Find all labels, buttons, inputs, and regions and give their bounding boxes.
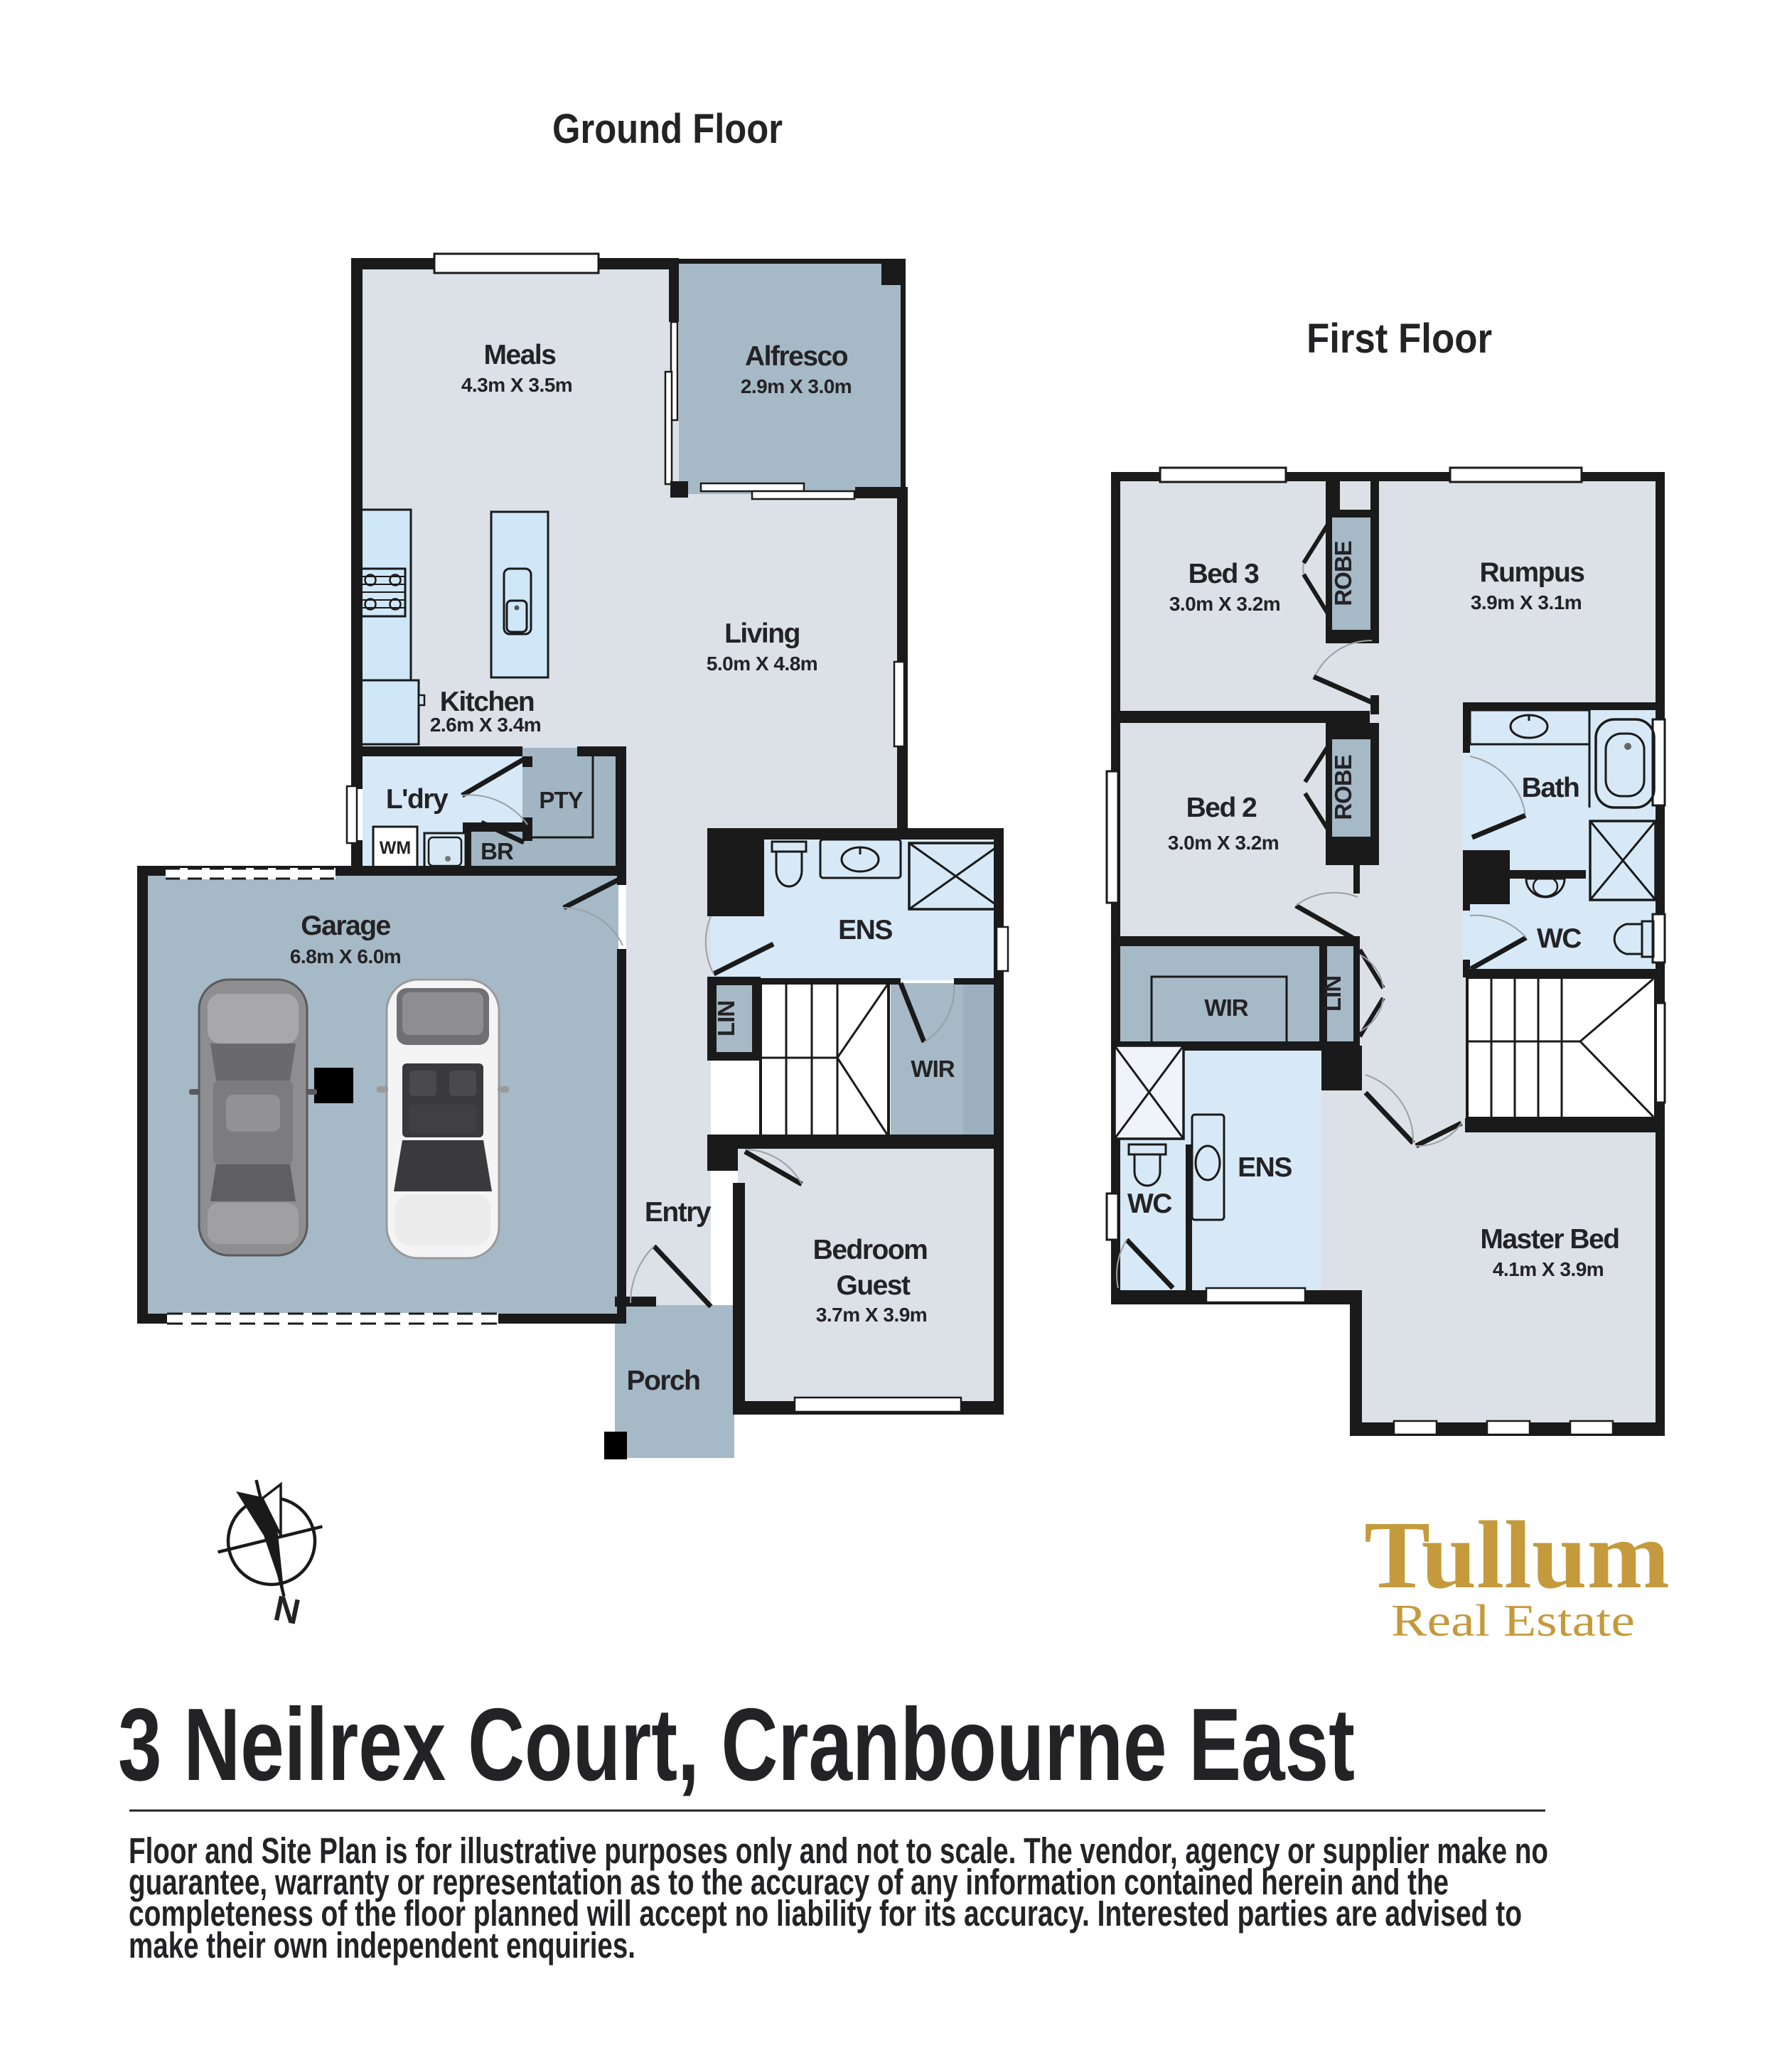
svg-text:3.7m X 3.9m: 3.7m X 3.9m <box>816 1304 927 1326</box>
svg-text:Master Bed: Master Bed <box>1480 1224 1619 1255</box>
svg-text:3.9m X 3.1m: 3.9m X 3.1m <box>1471 591 1582 613</box>
svg-text:WC: WC <box>1127 1189 1172 1219</box>
svg-text:Bedroom: Bedroom <box>813 1235 928 1265</box>
svg-text:Kitchen: Kitchen <box>440 687 535 717</box>
svg-text:WIR: WIR <box>1204 994 1248 1021</box>
svg-text:Bed 2: Bed 2 <box>1186 793 1257 823</box>
svg-text:Meals: Meals <box>484 340 557 370</box>
svg-text:WC: WC <box>1537 923 1582 954</box>
svg-text:make their own independent enq: make their own independent enquiries. <box>129 1925 635 1966</box>
svg-text:Garage: Garage <box>301 911 390 941</box>
svg-text:WM: WM <box>380 838 411 858</box>
svg-text:Bath: Bath <box>1522 773 1579 803</box>
svg-text:Bed 3: Bed 3 <box>1189 559 1260 589</box>
svg-text:4.1m X 3.9m: 4.1m X 3.9m <box>1493 1258 1604 1280</box>
svg-text:BR: BR <box>481 838 514 864</box>
svg-text:L'dry: L'dry <box>386 784 449 815</box>
svg-text:2.6m X 3.4m: 2.6m X 3.4m <box>430 714 541 736</box>
svg-text:Guest: Guest <box>836 1270 911 1301</box>
svg-text:ROBE: ROBE <box>1330 755 1356 820</box>
svg-text:4.3m X 3.5m: 4.3m X 3.5m <box>461 374 572 396</box>
svg-text:Porch: Porch <box>626 1366 699 1396</box>
svg-text:Alfresco: Alfresco <box>745 341 848 372</box>
svg-text:Entry: Entry <box>645 1197 712 1228</box>
svg-text:ROBE: ROBE <box>1330 541 1356 606</box>
svg-text:WIR: WIR <box>911 1056 955 1082</box>
svg-text:Rumpus: Rumpus <box>1480 557 1585 588</box>
svg-text:LIN: LIN <box>1319 976 1346 1012</box>
svg-text:PTY: PTY <box>539 787 583 813</box>
svg-text:3.0m X 3.2m: 3.0m X 3.2m <box>1168 832 1279 854</box>
svg-text:ENS: ENS <box>838 915 892 945</box>
svg-text:3 Neilrex Court, Cranbourne Ea: 3 Neilrex Court, Cranbourne East <box>118 1687 1355 1802</box>
svg-text:Living: Living <box>724 618 800 649</box>
svg-text:3.0m X 3.2m: 3.0m X 3.2m <box>1169 593 1280 615</box>
svg-text:LIN: LIN <box>713 1001 739 1036</box>
svg-text:2.9m X 3.0m: 2.9m X 3.0m <box>741 375 852 397</box>
svg-text:5.0m X 4.8m: 5.0m X 4.8m <box>707 653 817 675</box>
svg-text:Tullum: Tullum <box>1364 1502 1670 1609</box>
svg-text:6.8m X 6.0m: 6.8m X 6.0m <box>290 945 401 967</box>
svg-text:Ground Floor: Ground Floor <box>552 106 783 152</box>
svg-text:First Floor: First Floor <box>1307 316 1492 362</box>
svg-text:ENS: ENS <box>1238 1152 1292 1183</box>
svg-text:Real Estate: Real Estate <box>1391 1595 1635 1646</box>
